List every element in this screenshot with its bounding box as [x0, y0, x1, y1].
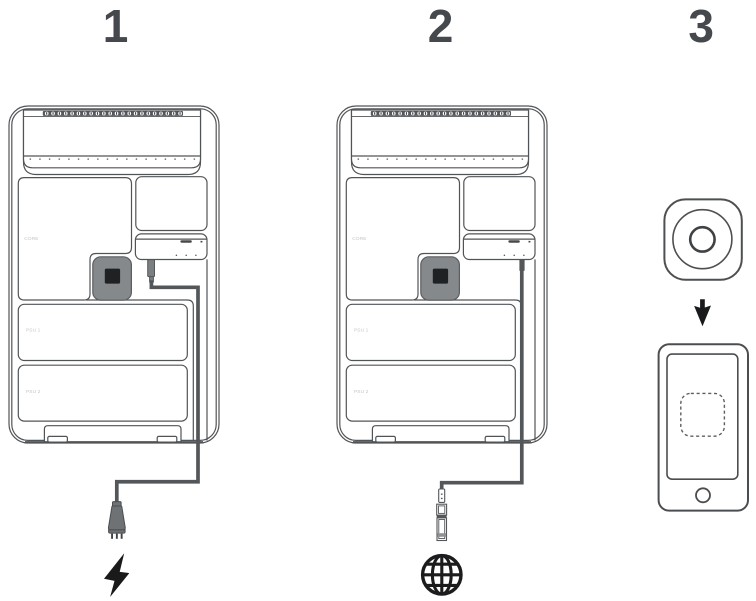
- svg-text:1: 1: [103, 0, 129, 52]
- svg-text:3: 3: [688, 0, 714, 52]
- svg-text:2: 2: [428, 0, 454, 52]
